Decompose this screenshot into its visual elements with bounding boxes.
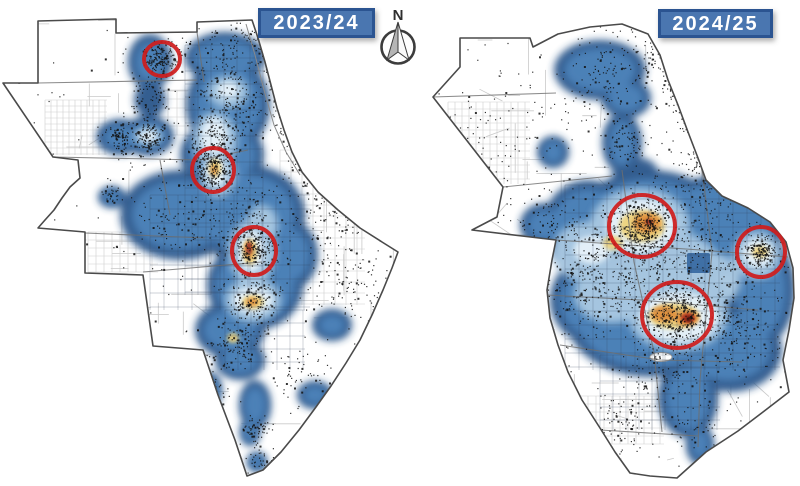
map-comparison-figure: N 2023/24 2024/25 (0, 0, 800, 486)
compass-north-arrow-icon: N (382, 7, 415, 64)
year-badge-2024-25: 2024/25 (658, 9, 773, 38)
year-badge-2023-24: 2023/24 (258, 8, 375, 38)
map-panel-2023-24 (0, 2, 439, 486)
maps-canvas: N (0, 0, 800, 486)
compass-label: N (393, 7, 404, 24)
map-panel-2024-25 (433, 15, 800, 486)
